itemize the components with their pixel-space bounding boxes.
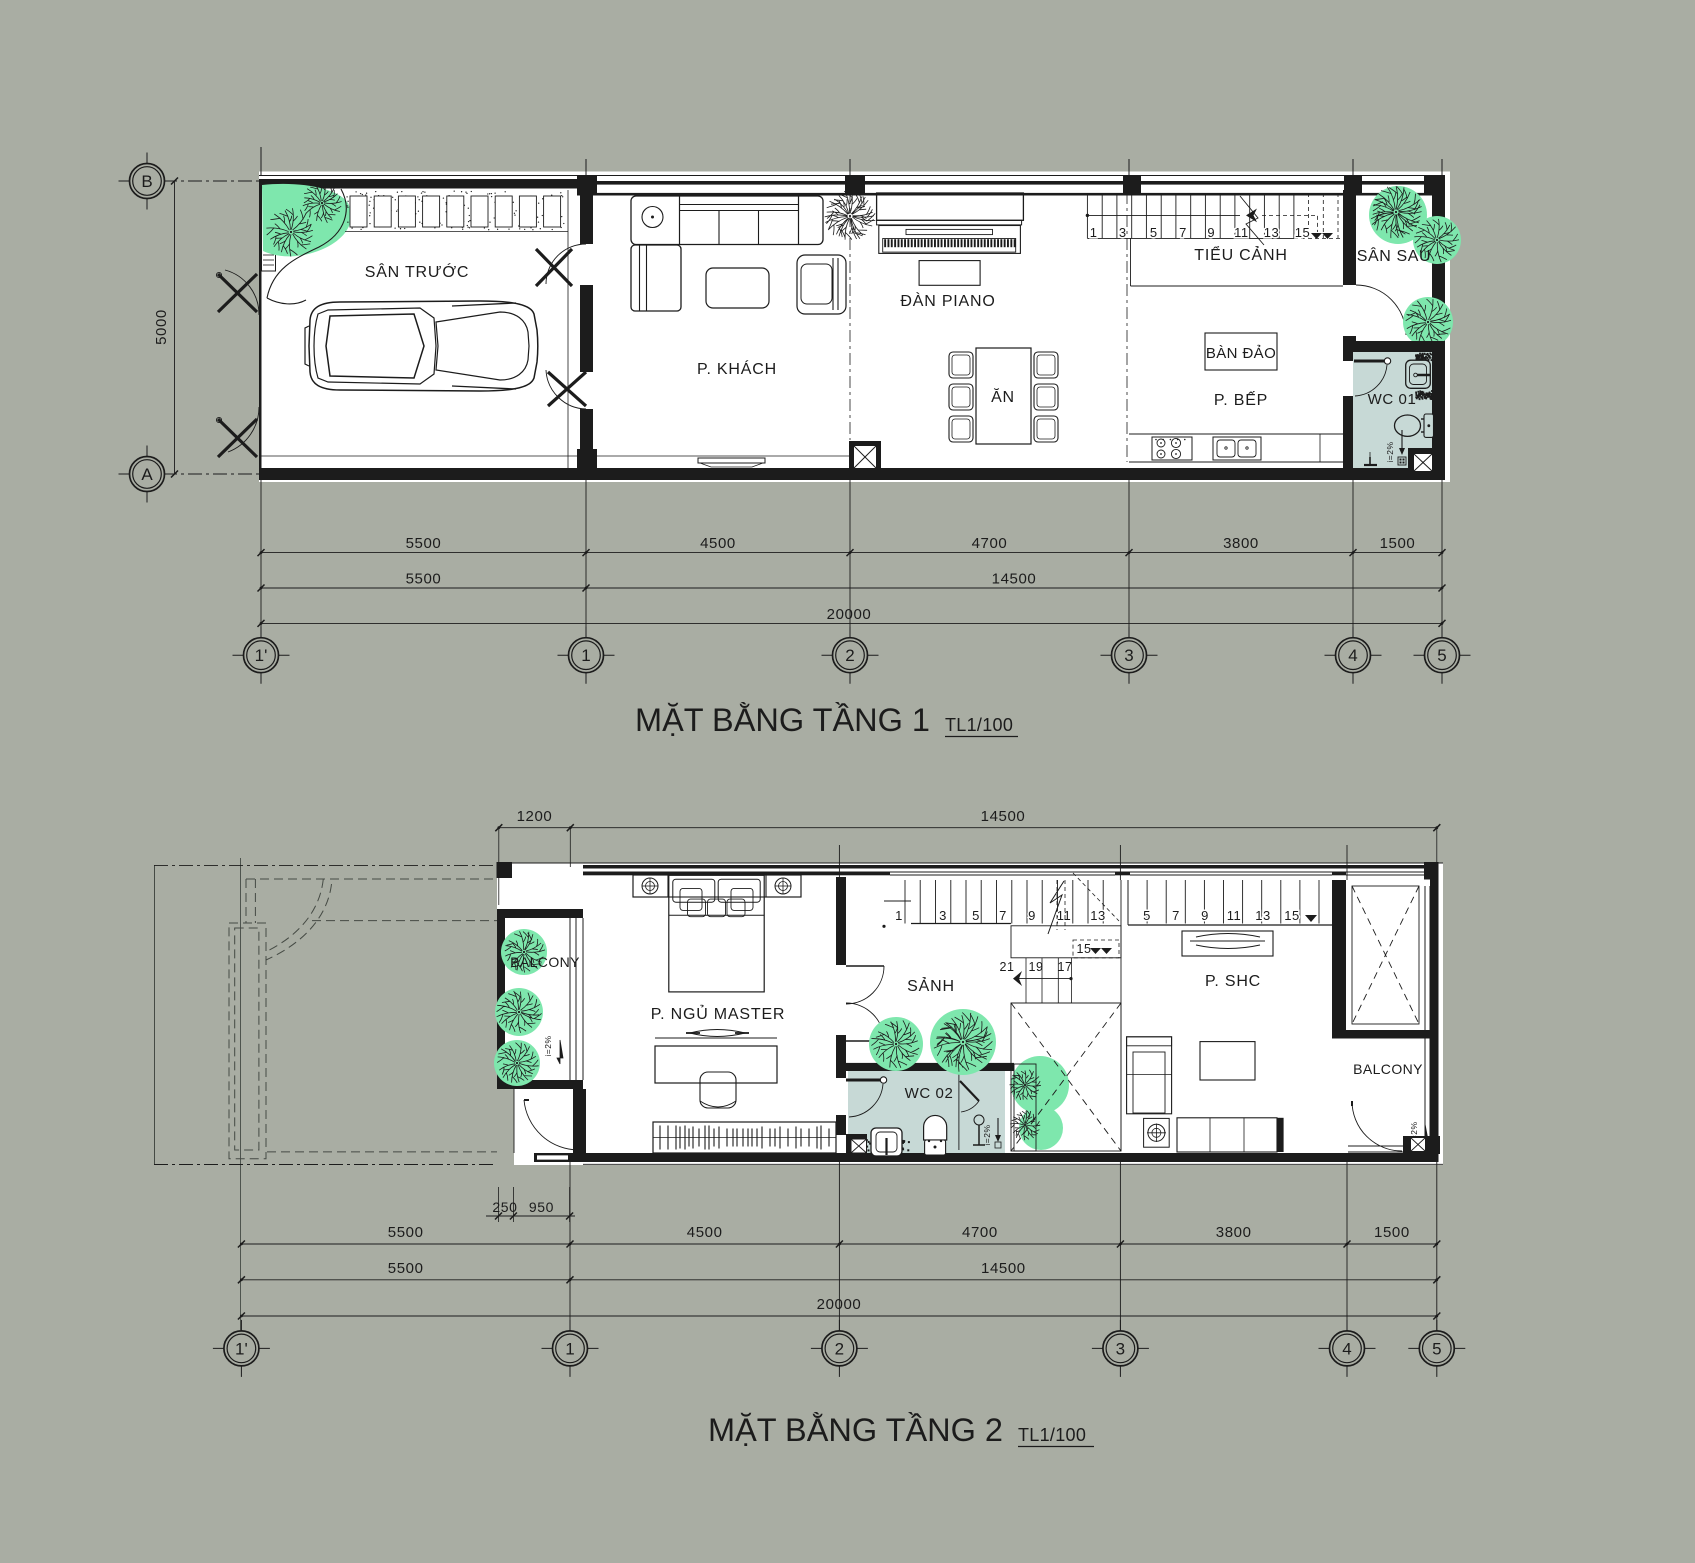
svg-text:5: 5 bbox=[1150, 225, 1158, 240]
svg-text:5500: 5500 bbox=[388, 1260, 424, 1277]
svg-text:5000: 5000 bbox=[153, 309, 170, 345]
svg-text:4500: 4500 bbox=[687, 1224, 723, 1241]
svg-text:BALCONY: BALCONY bbox=[1353, 1061, 1423, 1077]
svg-text:13: 13 bbox=[1255, 908, 1270, 923]
svg-text:250: 250 bbox=[492, 1199, 517, 1215]
svg-text:5: 5 bbox=[972, 908, 980, 923]
svg-text:ĐÀN PIANO: ĐÀN PIANO bbox=[900, 291, 995, 310]
svg-text:TL1/100: TL1/100 bbox=[945, 715, 1013, 735]
svg-text:14500: 14500 bbox=[981, 1260, 1026, 1277]
svg-text:BÀN ĐẢO: BÀN ĐẢO bbox=[1206, 345, 1276, 362]
svg-text:5: 5 bbox=[1432, 1339, 1441, 1358]
svg-text:21: 21 bbox=[1000, 960, 1015, 974]
svg-text:i=2%: i=2% bbox=[1385, 441, 1395, 462]
svg-text:1': 1' bbox=[255, 646, 268, 665]
svg-text:TIỂU CẢNH: TIỂU CẢNH bbox=[1194, 245, 1287, 264]
svg-text:1: 1 bbox=[1090, 225, 1098, 240]
svg-text:9: 9 bbox=[1207, 225, 1215, 240]
svg-text:5500: 5500 bbox=[406, 535, 442, 552]
svg-text:A: A bbox=[141, 465, 153, 484]
svg-text:MẶT BẰNG TẦNG 1: MẶT BẰNG TẦNG 1 bbox=[635, 701, 930, 738]
svg-text:ĂN: ĂN bbox=[991, 387, 1015, 406]
svg-text:1500: 1500 bbox=[1380, 535, 1416, 552]
svg-text:B: B bbox=[141, 172, 152, 191]
svg-text:5500: 5500 bbox=[406, 571, 442, 588]
svg-text:1: 1 bbox=[895, 908, 903, 923]
svg-text:1500: 1500 bbox=[1374, 1224, 1410, 1241]
svg-text:3: 3 bbox=[1119, 225, 1127, 240]
svg-text:P. BẾP: P. BẾP bbox=[1214, 390, 1268, 409]
svg-text:17: 17 bbox=[1058, 960, 1073, 974]
svg-text:P. SHC: P. SHC bbox=[1205, 973, 1261, 990]
svg-text:20000: 20000 bbox=[817, 1296, 862, 1313]
svg-text:3: 3 bbox=[939, 908, 947, 923]
svg-text:15: 15 bbox=[1284, 908, 1299, 923]
svg-text:7: 7 bbox=[1179, 225, 1187, 240]
svg-text:15: 15 bbox=[1295, 225, 1310, 240]
svg-text:14500: 14500 bbox=[981, 808, 1026, 825]
svg-text:P. KHÁCH: P. KHÁCH bbox=[697, 359, 777, 378]
svg-text:MẶT BẰNG TẦNG 2: MẶT BẰNG TẦNG 2 bbox=[708, 1411, 1003, 1448]
svg-text:4: 4 bbox=[1342, 1339, 1351, 1358]
svg-text:7: 7 bbox=[1172, 908, 1180, 923]
svg-text:5: 5 bbox=[1143, 908, 1151, 923]
svg-text:19: 19 bbox=[1029, 960, 1044, 974]
svg-text:1200: 1200 bbox=[517, 808, 553, 825]
svg-text:WC 02: WC 02 bbox=[905, 1085, 954, 1102]
svg-text:1: 1 bbox=[565, 1339, 574, 1358]
svg-text:9: 9 bbox=[1201, 908, 1209, 923]
svg-text:1: 1 bbox=[581, 646, 590, 665]
svg-text:20000: 20000 bbox=[827, 606, 872, 623]
svg-text:3800: 3800 bbox=[1216, 1224, 1252, 1241]
svg-text:WC 01: WC 01 bbox=[1368, 391, 1417, 408]
svg-text:SÂN TRƯỚC: SÂN TRƯỚC bbox=[365, 262, 470, 281]
svg-text:4500: 4500 bbox=[700, 535, 736, 552]
svg-text:SẢNH: SẢNH bbox=[907, 976, 955, 995]
svg-text:950: 950 bbox=[529, 1199, 554, 1215]
svg-text:11: 11 bbox=[1227, 908, 1242, 923]
svg-text:TL1/100: TL1/100 bbox=[1018, 1425, 1086, 1445]
svg-text:7: 7 bbox=[999, 908, 1007, 923]
svg-text:3800: 3800 bbox=[1223, 535, 1259, 552]
svg-text:3: 3 bbox=[1116, 1339, 1125, 1358]
svg-text:13: 13 bbox=[1264, 225, 1279, 240]
svg-text:2: 2 bbox=[845, 646, 854, 665]
svg-text:15: 15 bbox=[1077, 942, 1092, 956]
svg-text:9: 9 bbox=[1028, 908, 1036, 923]
svg-text:2: 2 bbox=[835, 1339, 844, 1358]
svg-text:11: 11 bbox=[1234, 225, 1249, 240]
svg-text:i=2%: i=2% bbox=[543, 1035, 553, 1056]
svg-text:i=2%: i=2% bbox=[982, 1124, 992, 1145]
svg-text:11: 11 bbox=[1057, 908, 1072, 923]
svg-text:4700: 4700 bbox=[962, 1224, 998, 1241]
svg-text:SÂN SAU: SÂN SAU bbox=[1357, 246, 1431, 265]
svg-text:1': 1' bbox=[235, 1339, 248, 1358]
svg-text:3: 3 bbox=[1124, 646, 1133, 665]
svg-text:14500: 14500 bbox=[992, 571, 1037, 588]
svg-text:5: 5 bbox=[1437, 646, 1446, 665]
svg-text:4700: 4700 bbox=[972, 535, 1008, 552]
svg-text:4: 4 bbox=[1348, 646, 1357, 665]
svg-text:13: 13 bbox=[1090, 908, 1105, 923]
svg-text:P. NGỦ MASTER: P. NGỦ MASTER bbox=[651, 1004, 786, 1023]
svg-text:5500: 5500 bbox=[388, 1224, 424, 1241]
svg-text:BALCONY: BALCONY bbox=[510, 954, 580, 970]
